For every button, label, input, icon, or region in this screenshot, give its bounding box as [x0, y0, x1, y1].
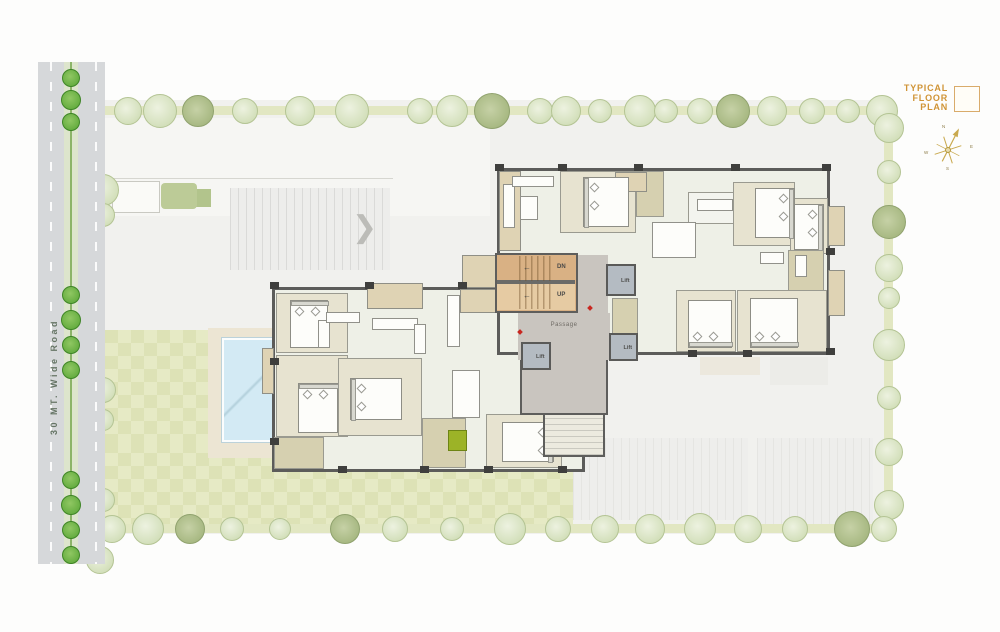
- wall-column: [826, 248, 835, 255]
- furniture-icon: [318, 320, 330, 348]
- tree-icon: [269, 518, 291, 540]
- tree-icon: [330, 514, 360, 544]
- pillow-icon: [779, 212, 789, 222]
- wall-column: [495, 164, 504, 171]
- bed-icon: [350, 378, 402, 420]
- lift: Lift: [606, 264, 636, 296]
- tree-icon: [877, 386, 901, 410]
- balcony: [828, 206, 845, 246]
- furniture-icon: [760, 252, 784, 264]
- tree-icon: [782, 516, 808, 542]
- tree-icon: [182, 95, 214, 127]
- hedge: [161, 183, 197, 209]
- lift: Lift: [609, 333, 638, 361]
- pillow-icon: [808, 228, 818, 238]
- stair-arrow-up: ←: [523, 292, 531, 300]
- bed-headboard: [818, 205, 823, 251]
- stair-arrow-dn: ←: [523, 264, 531, 272]
- tree-icon: [382, 516, 408, 542]
- plan-title: TYPICAL FLOOR PLAN: [830, 84, 948, 113]
- tree-icon: [878, 287, 900, 309]
- bed-headboard: [689, 342, 733, 347]
- tree-icon: [61, 310, 81, 330]
- tree-icon: [874, 113, 904, 143]
- bed-icon: [794, 204, 824, 250]
- pillow-icon: [590, 183, 600, 193]
- pillow-icon: [311, 307, 321, 317]
- staircase: ← DN ← UP: [495, 253, 578, 313]
- stair-up-label: UP: [557, 292, 565, 298]
- wall-column: [558, 164, 567, 171]
- furniture-icon: [503, 184, 515, 228]
- bed-icon: [755, 188, 795, 238]
- lane-marking: [95, 62, 97, 564]
- wall-column: [458, 282, 467, 289]
- tree-icon: [220, 517, 244, 541]
- wall-column: [826, 348, 835, 355]
- entrance-cabin: [112, 181, 160, 213]
- tree-icon: [871, 516, 897, 542]
- bathroom: [274, 437, 324, 469]
- tree-icon: [877, 160, 901, 184]
- tree-icon: [872, 205, 906, 239]
- tree-icon: [591, 515, 619, 543]
- chevron-right-icon: ❯: [352, 208, 382, 248]
- tree-icon: [757, 96, 787, 126]
- tree-icon: [61, 495, 81, 515]
- tree-icon: [62, 521, 80, 539]
- stair-dn-label: DN: [557, 264, 566, 270]
- tree-icon: [624, 95, 656, 127]
- tree-icon: [62, 546, 80, 564]
- tree-icon: [175, 514, 205, 544]
- wall-column: [558, 466, 567, 473]
- tree-icon: [734, 515, 762, 543]
- compass-s: S: [946, 166, 949, 171]
- balcony: [367, 283, 423, 309]
- furniture-icon: [520, 196, 538, 220]
- tree-icon: [436, 95, 468, 127]
- bed-icon: [583, 177, 629, 227]
- pillow-icon: [295, 307, 305, 317]
- tree-icon: [875, 438, 903, 466]
- tree-icon: [62, 336, 80, 354]
- tree-icon: [716, 94, 750, 128]
- bathroom: [612, 298, 638, 334]
- wall-column: [270, 282, 279, 289]
- bed-headboard: [299, 384, 339, 389]
- compass-n: N: [942, 124, 945, 129]
- tree-icon: [62, 471, 80, 489]
- tree-icon: [588, 99, 612, 123]
- tree-icon: [834, 511, 870, 547]
- furniture-icon: [372, 318, 418, 330]
- passage-label: Passage: [534, 322, 594, 328]
- floor-plan-key-icon: [954, 86, 980, 112]
- wall-column: [420, 466, 429, 473]
- entrance-steps: [543, 415, 605, 457]
- tree-icon: [551, 96, 581, 126]
- planter-icon: [448, 430, 467, 451]
- pillow-icon: [709, 332, 719, 342]
- pillow-icon: [357, 384, 367, 394]
- tree-icon: [285, 96, 315, 126]
- furniture-icon: [326, 312, 360, 323]
- wall-column: [688, 350, 697, 357]
- passage: [578, 255, 608, 315]
- pillow-icon: [303, 390, 313, 400]
- balcony: [828, 270, 845, 316]
- tree-icon: [635, 514, 665, 544]
- furniture-icon: [452, 370, 480, 418]
- wall-column: [731, 164, 740, 171]
- tree-icon: [875, 254, 903, 282]
- terrace: [770, 357, 828, 385]
- bed-headboard: [351, 379, 356, 421]
- wall-column: [484, 466, 493, 473]
- tree-icon: [62, 69, 80, 87]
- tree-icon: [494, 513, 526, 545]
- furniture-icon: [697, 199, 733, 211]
- tree-icon: [545, 516, 571, 542]
- pillow-icon: [771, 332, 781, 342]
- tree-icon: [687, 98, 713, 124]
- wall-column: [365, 282, 374, 289]
- furniture-icon: [512, 176, 554, 187]
- tree-icon: [61, 90, 81, 110]
- lift: Lift: [521, 342, 551, 370]
- wall-column: [270, 438, 279, 445]
- tree-icon: [143, 94, 177, 128]
- furniture-icon: [414, 324, 426, 354]
- tree-icon: [684, 513, 716, 545]
- tree-icon: [654, 99, 678, 123]
- furniture-icon: [652, 222, 696, 258]
- tree-icon: [62, 286, 80, 304]
- compass-rose-icon: N E S W: [922, 122, 978, 174]
- balcony: [462, 255, 496, 288]
- tree-icon: [407, 98, 433, 124]
- wall-column: [743, 350, 752, 357]
- tree-icon: [232, 98, 258, 124]
- balcony: [262, 348, 274, 394]
- furniture-icon: [795, 255, 807, 277]
- pillow-icon: [693, 332, 703, 342]
- tree-icon: [62, 361, 80, 379]
- tree-icon: [62, 113, 80, 131]
- pillow-icon: [808, 210, 818, 220]
- tree-icon: [335, 94, 369, 128]
- bed-headboard: [584, 178, 589, 228]
- tree-icon: [114, 97, 142, 125]
- compound-wall: [105, 178, 393, 179]
- tree-icon: [799, 98, 825, 124]
- wall-column: [822, 164, 831, 171]
- bed-icon: [298, 383, 338, 433]
- tree-icon: [440, 517, 464, 541]
- bed-icon: [750, 298, 798, 348]
- terrace: [700, 357, 760, 375]
- wall-column: [270, 358, 279, 365]
- bed-headboard: [291, 301, 329, 306]
- road-label: 30 MT. Wide Road: [49, 302, 63, 452]
- pillow-icon: [779, 194, 789, 204]
- bed-headboard: [751, 342, 799, 347]
- pillow-icon: [590, 201, 600, 211]
- compass-w: W: [924, 150, 928, 155]
- wall-column: [634, 164, 643, 171]
- furniture-icon: [447, 295, 460, 347]
- pillow-icon: [755, 332, 765, 342]
- tree-icon: [874, 490, 904, 520]
- compass-e: E: [970, 144, 973, 149]
- wall-column: [338, 466, 347, 473]
- tree-icon: [527, 98, 553, 124]
- pillow-icon: [357, 402, 367, 412]
- site-plan-canvas: ❯ 30 MT. Wide Road Passage ← DN: [0, 0, 1000, 632]
- bed-icon: [688, 300, 732, 348]
- pillow-icon: [319, 390, 329, 400]
- tree-icon: [474, 93, 510, 129]
- tree-icon: [132, 513, 164, 545]
- tree-icon: [873, 329, 905, 361]
